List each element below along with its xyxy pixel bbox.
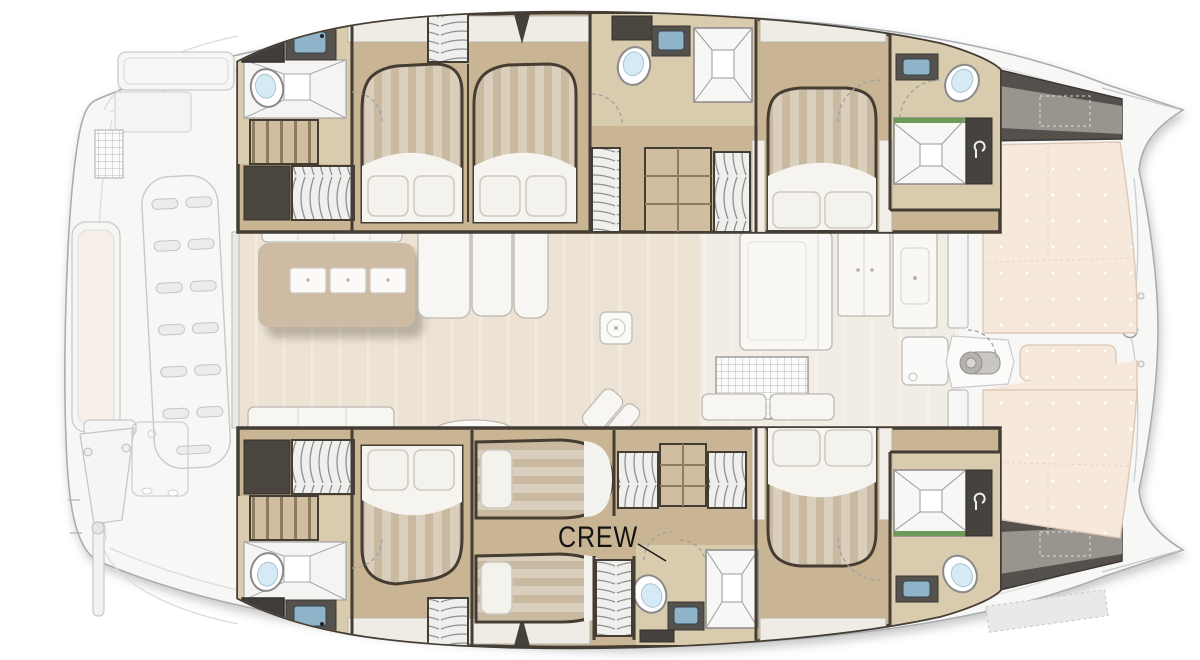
sunpad-bottom: [983, 360, 1137, 538]
washbasin-port-aft: [896, 54, 938, 80]
stairs-stbd-companionway: [596, 560, 632, 636]
wardrobe-port-fwd: [292, 166, 354, 220]
crew-bunk-1: [476, 440, 612, 518]
windlass-winch: [946, 336, 1014, 388]
sunpad-top: [983, 142, 1137, 333]
cabinet-dark-stbd-fwd: [244, 440, 290, 494]
salon-front-wall: [232, 232, 239, 428]
washbasin-stbd-mid: [668, 602, 704, 630]
bed-stbd-forward: [362, 446, 462, 584]
cabinet-dark-port-fwd: [244, 166, 290, 220]
nav-cabinet: [893, 232, 937, 328]
wardrobe-stbd-fwd: [292, 440, 354, 494]
bed-port-forward-2: [474, 64, 576, 222]
floor-plan-svg: CREW: [0, 0, 1200, 660]
shower-stall-stbd-mid: [706, 550, 758, 628]
washbasin-stbd-aft: [896, 576, 938, 602]
wardrobe-stbd-crew-1: [618, 452, 658, 508]
wardrobe-port-mid: [714, 152, 750, 232]
deck-hatch-grid: [95, 130, 123, 178]
fitting-dark-stbd-mid: [640, 630, 674, 642]
crew-label: CREW: [558, 521, 638, 554]
steps-stbd-fwd: [250, 496, 318, 540]
locker-dark-port-aft: [966, 118, 992, 184]
crew-bunk-2: [476, 554, 612, 622]
stairs-port-companionway: [592, 148, 620, 232]
deck-plan: CREW: [0, 0, 1200, 660]
shelves-port-mid: [645, 148, 711, 232]
deck-hatch-small: [115, 92, 191, 132]
bow-cleat-bottom: [1138, 361, 1144, 367]
bow-cleat-top: [1138, 293, 1144, 299]
washbasin-port-fwd: [286, 26, 336, 60]
tiller-pole: [93, 522, 104, 616]
wardrobe-stbd-crew-2: [708, 452, 746, 508]
shelves-stbd-crew: [660, 444, 706, 506]
bed-port-forward-1: [362, 64, 462, 222]
washbasin-port-mid: [652, 26, 690, 56]
steps-port-fwd: [250, 120, 318, 164]
locker-dark-stbd-aft: [966, 470, 992, 536]
fridge-unit: [838, 228, 890, 316]
cabinet-dark-port-mid: [612, 16, 652, 40]
shower-stall-port-mid: [694, 28, 752, 102]
bed-port-aft: [768, 88, 876, 230]
shower-stall-port-aft: [894, 118, 966, 184]
wardrobe-port-mid-top: [428, 14, 468, 62]
ottoman: [600, 312, 632, 344]
shower-stall-stbd-aft: [894, 470, 966, 536]
washbasin-stbd-fwd: [286, 600, 336, 632]
wardrobe-stbd-mid-bottom: [428, 598, 468, 646]
deck-sink: [902, 337, 948, 385]
bed-stbd-aft: [768, 426, 876, 566]
